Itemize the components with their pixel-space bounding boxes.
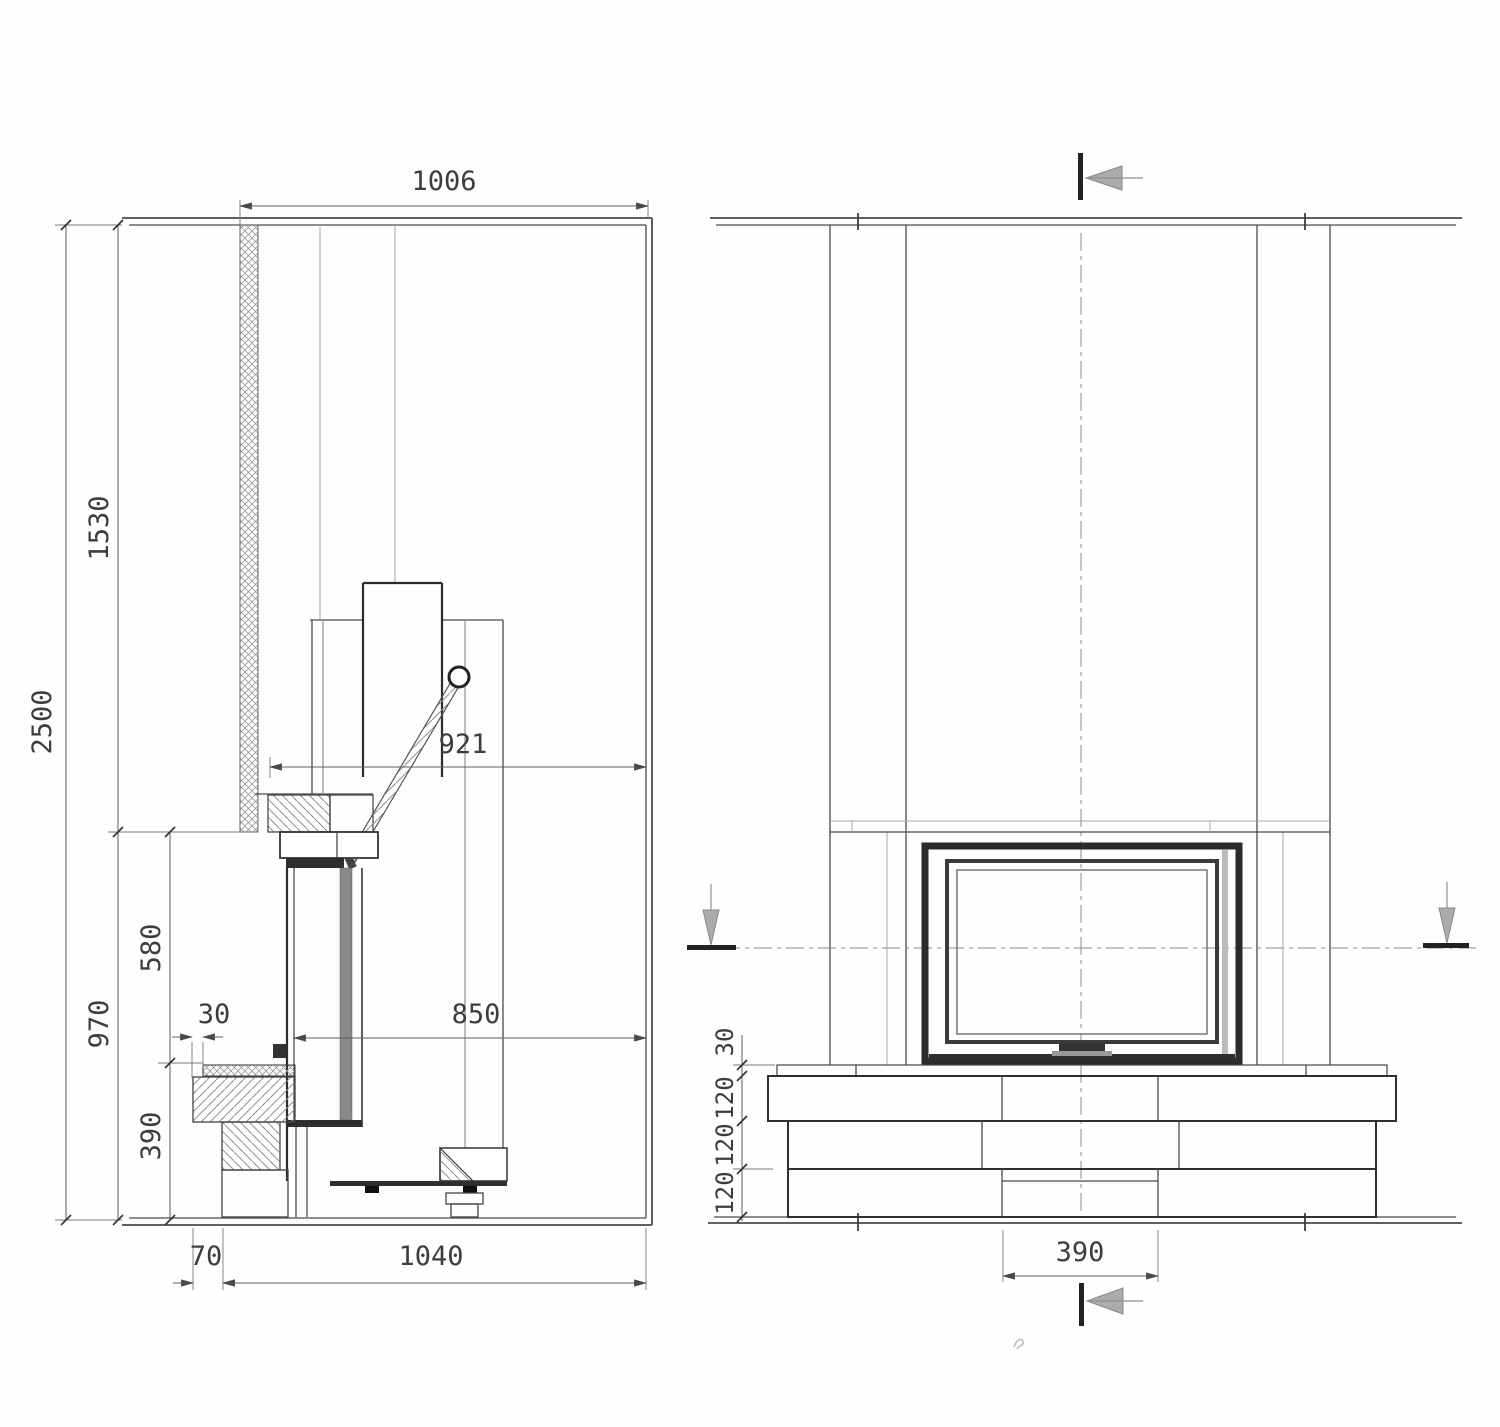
dim-course-2: 120 (711, 1123, 739, 1166)
door-glass-front (957, 870, 1207, 1034)
dim-depth-upper: 921 (439, 729, 488, 760)
side-section-view: 1006 2500 1530 970 580 390 (27, 166, 652, 1290)
level-datum (687, 882, 1478, 950)
flue-pipe (363, 583, 442, 777)
room-boundary (122, 218, 652, 1225)
front-elevation-view: 30 120 120 120 390 (687, 153, 1478, 1349)
firebox-outer-frame (925, 846, 1239, 1061)
dim-plinth-depth: 1040 (398, 1241, 463, 1272)
dim-top-width: 1006 (411, 166, 476, 197)
dim-course-3: 120 (711, 1171, 739, 1214)
dim-plinth-setback: 70 (190, 1241, 223, 1272)
insulation-panel (240, 225, 258, 832)
dim-lower-height: 970 (84, 1000, 115, 1049)
bench-front (768, 1065, 1396, 1217)
fireplace-technical-drawing: 1006 2500 1530 970 580 390 (0, 0, 1500, 1427)
heat-storage-block (310, 620, 503, 1148)
dim-base-width: 390 (1056, 1237, 1105, 1268)
door-lintel (280, 832, 378, 868)
plinth-course-3 (222, 1170, 288, 1217)
door-glass (340, 868, 352, 1120)
bench-top-slab (777, 1065, 1387, 1076)
section-marker-top (1078, 153, 1143, 200)
pivot-circle (449, 667, 469, 687)
print-artifact-mark (1014, 1339, 1023, 1349)
firebox-front (925, 846, 1239, 1062)
bench-course-2 (788, 1121, 1376, 1169)
dimensions-front-elevation: 30 120 120 120 390 (711, 1028, 1158, 1282)
dim-door-height: 580 (136, 924, 167, 973)
plinth-section (193, 1065, 295, 1217)
dim-slab-thickness: 30 (711, 1028, 739, 1057)
technical-drawing-page: 1006 2500 1530 970 580 390 (0, 0, 1500, 1427)
bench-course-1 (768, 1076, 1396, 1121)
cladding-columns (830, 225, 1330, 1065)
level-arrow-left (703, 910, 719, 945)
dim-upper-height: 1530 (84, 495, 115, 560)
front-ceiling-floor (708, 213, 1462, 1231)
section-marker-bottom (1079, 1283, 1143, 1326)
firebox-floor (287, 1120, 362, 1127)
dim-plinth-height: 390 (136, 1112, 167, 1161)
dim-slab-setback: 30 (198, 999, 231, 1030)
plinth-top-slab (203, 1065, 295, 1076)
panel-bottom-bracket (255, 794, 373, 832)
bench-course-3 (788, 1169, 1376, 1217)
door-handle-side (273, 1044, 287, 1058)
frame-reveal (1222, 850, 1228, 1056)
door-handle-front (1059, 1043, 1105, 1051)
door-frame (947, 861, 1217, 1042)
level-arrow-right (1439, 908, 1455, 943)
dim-total-height: 2500 (27, 689, 58, 754)
plinth-course-2 (222, 1122, 280, 1170)
stove-base (287, 1127, 507, 1217)
dim-depth-glass: 850 (452, 999, 501, 1030)
plinth-course-1 (193, 1077, 295, 1122)
dim-course-1: 120 (711, 1076, 739, 1119)
